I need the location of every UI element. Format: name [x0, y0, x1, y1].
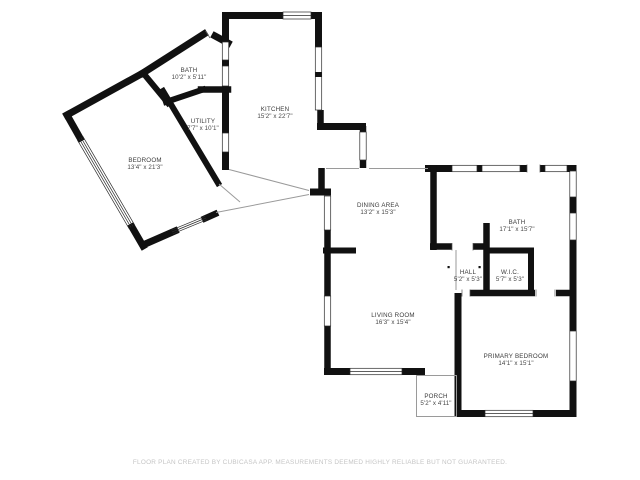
room-label-bath-small: BATH — [181, 67, 198, 74]
window-bedroom-bottom-line — [173, 220, 207, 234]
door-nub — [448, 266, 450, 268]
wall-outer-upper-left-a — [67, 73, 143, 115]
walls-rotated-section — [67, 34, 228, 246]
window-kitchen-right — [315, 47, 321, 110]
window-kitchen-step — [360, 132, 366, 160]
open-boundaries — [216, 169, 481, 417]
door-nub — [479, 266, 481, 268]
window-right-upper-2 — [570, 213, 576, 240]
window-divider-nub — [315, 72, 321, 77]
window-kitchen-left-3 — [222, 133, 228, 152]
room-dims-living-room: 16'3" x 15'4" — [375, 319, 410, 326]
window-bath-top-2 — [482, 165, 520, 171]
window-bedroom-left-line — [79, 139, 131, 228]
room-label-utility: UTILITY — [191, 118, 215, 125]
floor-plan-canvas: BATH 10'2" x 5'11" UTILITY 7'7" x 10'1" … — [0, 0, 640, 480]
room-label-living-room: LIVING ROOM — [371, 312, 414, 319]
room-dims-bath-small: 10'2" x 5'11" — [172, 74, 207, 81]
room-label-bedroom: BEDROOM — [128, 157, 161, 164]
room-label-primary-bedroom: PRIMARY BEDROOM — [484, 353, 549, 360]
room-dims-utility: 7'7" x 10'1" — [187, 125, 219, 132]
door-bath-entry — [452, 243, 473, 252]
room-dims-hall: 5'2" x 5'3" — [454, 276, 482, 283]
window-kitchen-left-2 — [222, 66, 228, 86]
door-leaf-utility — [219, 184, 240, 202]
wall-bedroom-bottom-a — [143, 231, 175, 245]
room-dims-dining-area: 13'2" x 15'3" — [360, 209, 395, 216]
floor-plan-page: BATH 10'2" x 5'11" UTILITY 7'7" x 10'1" … — [0, 0, 640, 480]
room-label-bath: BATH — [509, 219, 526, 226]
opening-corridor-upper — [229, 170, 309, 191]
footer-disclaimer: FLOOR PLAN CREATED BY CUBICASA APP. MEAS… — [133, 459, 507, 466]
room-label-dining-area: DINING AREA — [357, 202, 400, 209]
window-bedroom-bottom-line — [172, 218, 206, 232]
room-dims-bedroom: 13'4" x 21'3" — [127, 164, 162, 171]
opening-corridor-lower — [216, 195, 309, 213]
wall-bedroom-bottom-b — [205, 214, 215, 219]
room-label-wic: W.I.C. — [501, 269, 519, 276]
window-bedroom-bottom-line — [171, 216, 205, 230]
room-dims-porch: 5'2" x 4'11" — [420, 400, 451, 407]
room-dims-kitchen: 15'2" x 22'7" — [257, 113, 292, 120]
window-bedroom-left-line — [77, 140, 129, 229]
room-label-hall: HALL — [460, 269, 477, 276]
window-bedroom-left-line — [81, 137, 133, 226]
room-label-porch: PORCH — [424, 393, 447, 400]
room-dims-bath: 17'1" x 15'7" — [499, 226, 534, 233]
wall-bedroom-left-upper — [67, 115, 80, 138]
window-bedroom-left-line — [83, 136, 135, 225]
wall-utility-top-diag — [166, 90, 203, 103]
wall-bedroom-utility-divider — [163, 91, 218, 183]
window-bath-top-1 — [452, 165, 477, 171]
room-dims-primary-bedroom: 14'1" x 15'1" — [498, 360, 533, 367]
room-dims-wic: 5'7" x 5'3" — [496, 276, 524, 283]
window-dining-left — [324, 196, 330, 230]
window-bath-top-3 — [545, 165, 567, 171]
door-bath-top — [527, 164, 540, 173]
window-right-upper-1 — [570, 171, 576, 197]
window-living-left — [324, 296, 330, 326]
window-primary-right — [570, 331, 576, 381]
window-kitchen-left-1 — [222, 42, 228, 60]
room-label-kitchen: KITCHEN — [261, 106, 290, 113]
door-openings — [206, 31, 556, 297]
